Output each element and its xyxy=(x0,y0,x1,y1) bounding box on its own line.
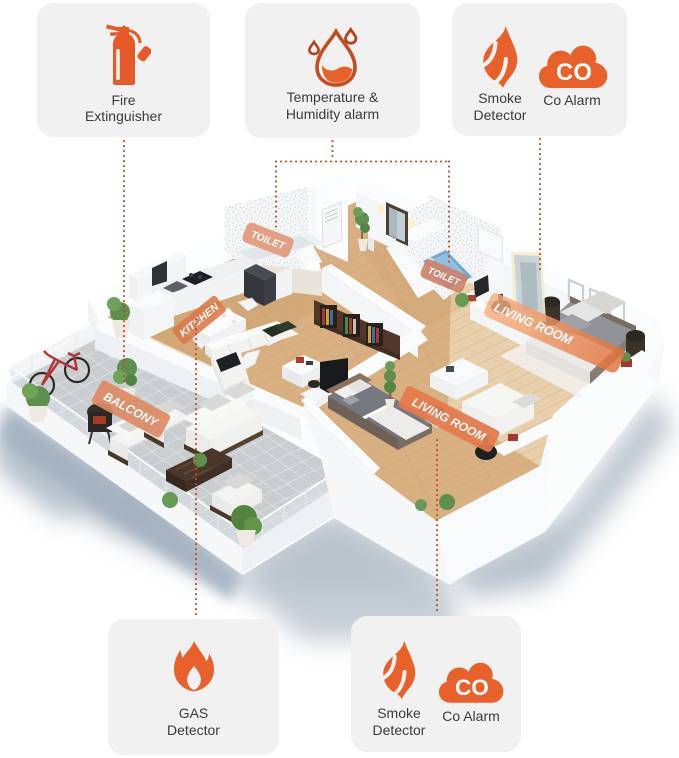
svg-text:CO: CO xyxy=(556,59,592,86)
svg-text:CO: CO xyxy=(455,675,489,700)
